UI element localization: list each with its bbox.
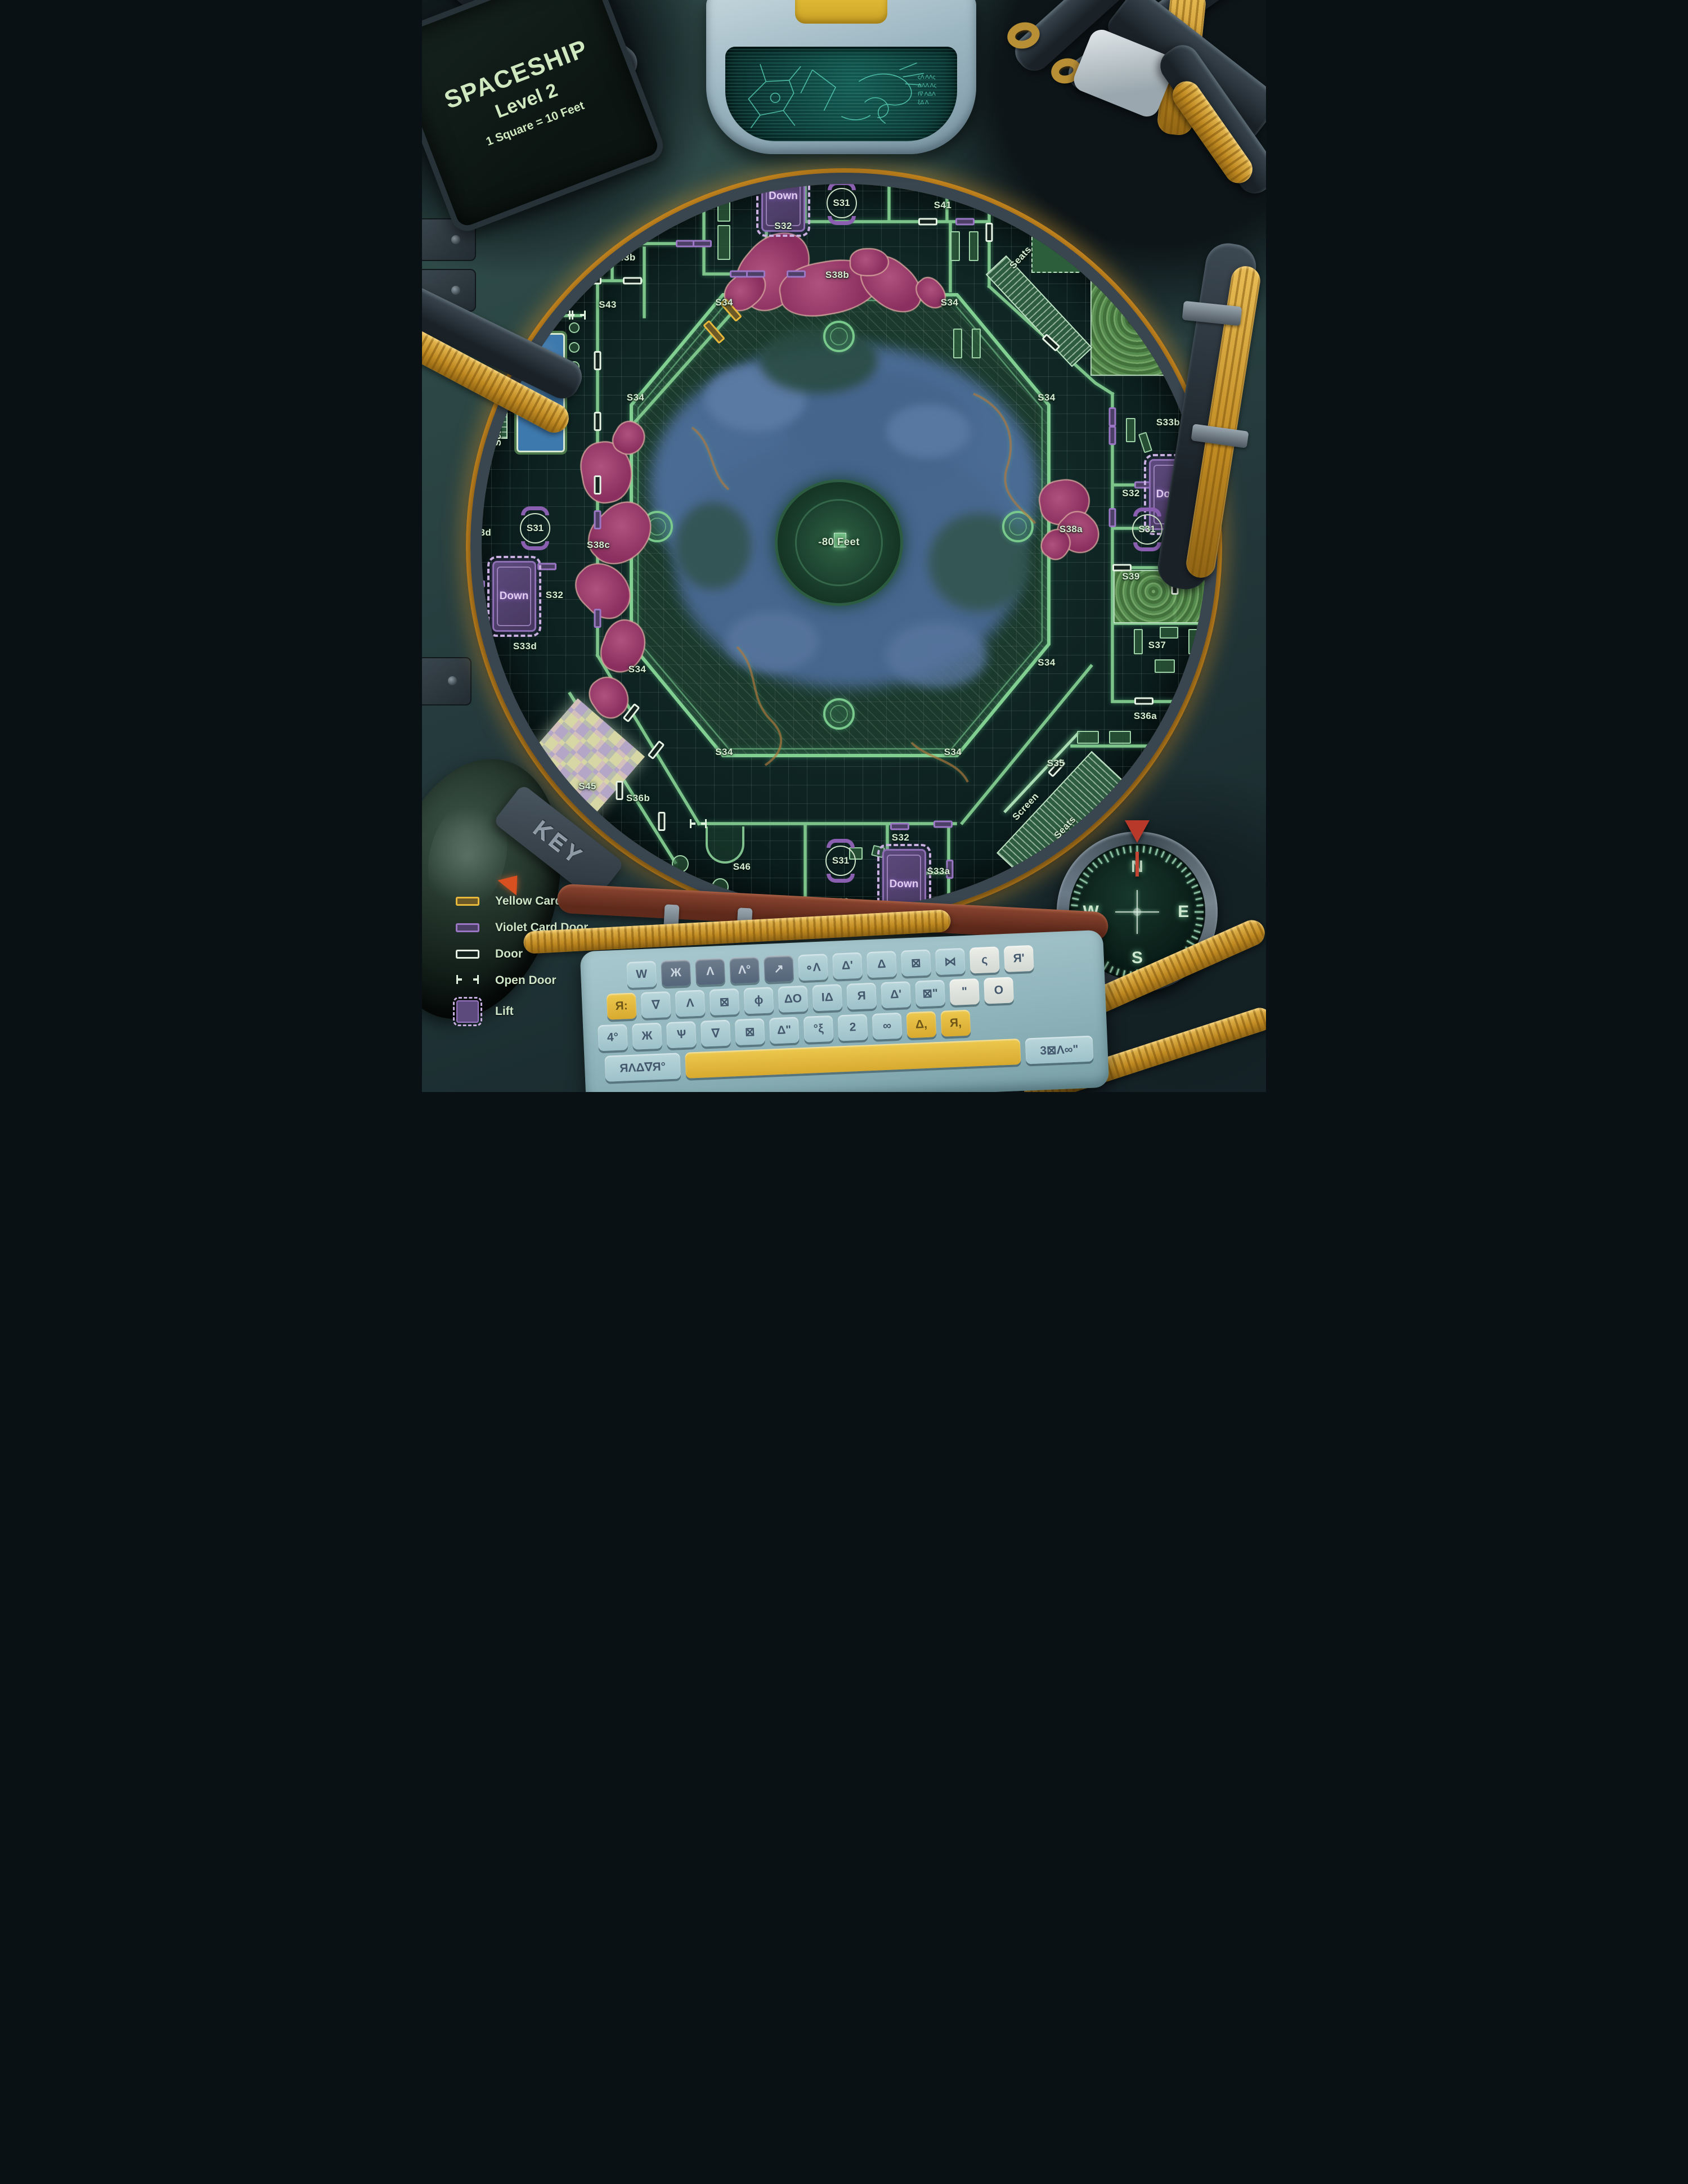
violet-card-door (537, 563, 556, 570)
s31-node: S31 (822, 842, 859, 879)
violet-card-door (592, 184, 600, 193)
violet-card-door (1109, 407, 1116, 426)
door (623, 277, 642, 284)
open-door-icon (455, 975, 481, 986)
alien-key[interactable]: Я (846, 983, 877, 1010)
room-label: S33d (513, 641, 537, 652)
violet-card-door (890, 823, 909, 830)
room-label: S39 (1122, 571, 1139, 582)
room-label: S43a (579, 252, 602, 263)
alien-key[interactable]: ⊠ (735, 1018, 765, 1045)
room-label: S34 (715, 297, 733, 308)
room-label: S46 (733, 861, 751, 873)
room-label: S34 (1038, 392, 1055, 403)
room-label: S34 (1038, 657, 1055, 668)
room-label: S40 (1007, 188, 1025, 200)
room-label: -80 Feet (818, 536, 860, 548)
room-label: S34 (628, 664, 646, 675)
alien-key[interactable]: ∇ (641, 991, 671, 1018)
alien-key[interactable]: ∘Λ (798, 954, 828, 981)
room-label: S42 (661, 212, 678, 223)
alien-key[interactable]: 4° (598, 1024, 628, 1051)
room-label: S34 (941, 297, 958, 308)
violet-card-door (676, 240, 695, 247)
room-label: S35 (1047, 758, 1065, 769)
room-label: S41 (934, 200, 951, 211)
room-label: S38b (825, 269, 849, 281)
alien-key[interactable]: ∇ (701, 1020, 731, 1047)
room-label: S36a (1134, 711, 1157, 722)
violet-card-door (955, 218, 975, 226)
alien-key[interactable]: Ѱ (666, 1021, 697, 1048)
visor-device: ςΛ ΛΛς ΔΛΛ Λς Ι∇ ΛΔΛ ξΔ Λ (706, 0, 976, 154)
visor-yellow-tab (795, 0, 887, 24)
room-label: S33a (927, 866, 950, 877)
violet-card-door-icon (455, 923, 481, 932)
map-field: DownDownDownDown S31S31S31S31 S33bS41aS4… (482, 184, 1206, 909)
compass-south: S (1132, 949, 1143, 968)
legend-label: Open Door (495, 974, 556, 987)
alien-key[interactable]: ЯΛΔ∇Я° (604, 1053, 681, 1082)
alien-key[interactable]: Δ, (906, 1011, 937, 1038)
room-label: S43 (599, 299, 616, 311)
violet-card-door (482, 581, 485, 588)
door (582, 277, 601, 284)
s31-node: S31 (823, 185, 860, 222)
compass-pointer (1125, 820, 1150, 843)
alien-key[interactable]: Ж (632, 1023, 662, 1050)
violet-card-door (1153, 742, 1173, 749)
room-label: S33c (729, 184, 752, 189)
room-label: S39 (1128, 314, 1146, 326)
violet-card-door (746, 271, 765, 278)
room-label: S44b (549, 269, 572, 281)
alien-key[interactable]: O (984, 977, 1014, 1004)
room-label: Seats (492, 419, 504, 446)
alien-key[interactable]: Δ" (769, 1017, 800, 1044)
room-label: S36b (626, 793, 650, 804)
compass-east: E (1178, 902, 1189, 922)
room-label: S32 (892, 832, 909, 843)
door (986, 223, 993, 242)
door (594, 475, 601, 495)
lift-down: Down (492, 561, 536, 632)
alien-key[interactable]: ⊠" (915, 980, 945, 1007)
garden-texture-s39-upper (1090, 280, 1206, 376)
legend-label: Lift (495, 1005, 514, 1018)
room-label: S32 (1122, 488, 1139, 499)
violet-card-door (594, 510, 601, 529)
alien-key[interactable]: Λ° (729, 956, 760, 983)
alien-key[interactable]: ς (969, 946, 1000, 973)
room-label: S32 (546, 590, 563, 601)
room-label: S38c (587, 540, 610, 551)
alien-key[interactable]: ⊠ (710, 988, 740, 1015)
door (918, 218, 937, 226)
room-label: S38a (1060, 524, 1083, 535)
yellow-card-door-icon (455, 897, 481, 906)
alien-key[interactable]: Я: (607, 993, 637, 1020)
alien-key[interactable]: Λ (675, 990, 706, 1017)
open-door (569, 311, 586, 320)
alien-key[interactable]: ↗ (764, 955, 794, 982)
alien-key[interactable]: Я, (941, 1010, 971, 1037)
room-label: S32 (774, 221, 792, 232)
door (1134, 698, 1153, 705)
alien-key[interactable]: W (626, 961, 657, 988)
alien-key[interactable]: ϕ (744, 987, 774, 1014)
visor-screen: ςΛ ΛΛς ΔΛΛ Λς Ι∇ ΛΔΛ ξΔ Λ (725, 47, 958, 141)
door (594, 412, 601, 431)
alien-keyboard: WЖΛΛ°↗∘ΛΔ'Δ⊠⋈ςЯ'Я:∇Λ⊠ϕΔOΙΔЯΔ'⊠""O4°ЖѰ∇⊠Δ… (580, 930, 1110, 1092)
door (658, 812, 666, 831)
room-label: S37 (1148, 640, 1166, 651)
violet-card-door (933, 821, 953, 828)
alien-key[interactable]: Ж (661, 959, 691, 986)
lift-label: Down (500, 590, 529, 603)
door-icon (455, 950, 481, 959)
open-door (690, 819, 707, 828)
room-label: S33d (482, 527, 491, 538)
violet-card-door (1109, 508, 1116, 527)
alien-key[interactable]: ⋈ (935, 948, 966, 975)
room-label: S34 (715, 747, 733, 758)
lift-label: Down (890, 878, 919, 891)
alien-key[interactable]: °ξ (803, 1015, 834, 1042)
alien-key[interactable]: Λ (695, 958, 725, 985)
room-label: S34 (627, 392, 644, 403)
spaceship-console: DownDownDownDown S31S31S31S31 S33bS41aS4… (422, 0, 1266, 1092)
violet-card-door (1109, 426, 1116, 445)
room-label: S45 (578, 781, 596, 792)
lift-down: Down (882, 849, 926, 909)
alien-key[interactable]: 2 (838, 1014, 868, 1041)
door (1047, 184, 1054, 186)
room-label: S33b (1156, 417, 1180, 428)
s31-node: S31 (517, 510, 554, 547)
alien-key[interactable]: ΙΔ (812, 984, 842, 1011)
alien-key[interactable]: 3⊠Λ∞" (1025, 1036, 1093, 1064)
legend-label: Door (495, 947, 523, 961)
alien-key[interactable]: Я' (1004, 945, 1034, 972)
room-label: S44a (529, 308, 553, 319)
room-label: S34 (944, 747, 962, 758)
alien-key[interactable]: Δ (867, 951, 897, 978)
map-screen: DownDownDownDown S31S31S31S31 S33bS41aS4… (482, 184, 1206, 909)
door (616, 781, 623, 800)
alien-key[interactable]: " (949, 978, 980, 1005)
alien-key[interactable]: ⊠ (901, 950, 931, 977)
alien-key[interactable]: ΔO (778, 986, 808, 1013)
alien-key[interactable]: Δ' (881, 981, 911, 1008)
violet-card-door (787, 271, 806, 278)
lift-icon (455, 1000, 481, 1023)
alien-key[interactable]: ∞ (872, 1013, 903, 1040)
violet-card-door (693, 240, 712, 247)
wall-bracket (422, 657, 472, 705)
lift-label: Down (769, 190, 798, 203)
room-label: S43b (612, 252, 635, 263)
alien-key[interactable]: Δ' (832, 952, 863, 979)
violet-card-door (594, 609, 601, 628)
door (594, 351, 601, 370)
s31-node: S31 (1129, 511, 1166, 548)
visor-alien-text: ςΛ ΛΛς ΔΛΛ Λς Ι∇ ΛΔΛ ξΔ Λ (918, 73, 936, 107)
